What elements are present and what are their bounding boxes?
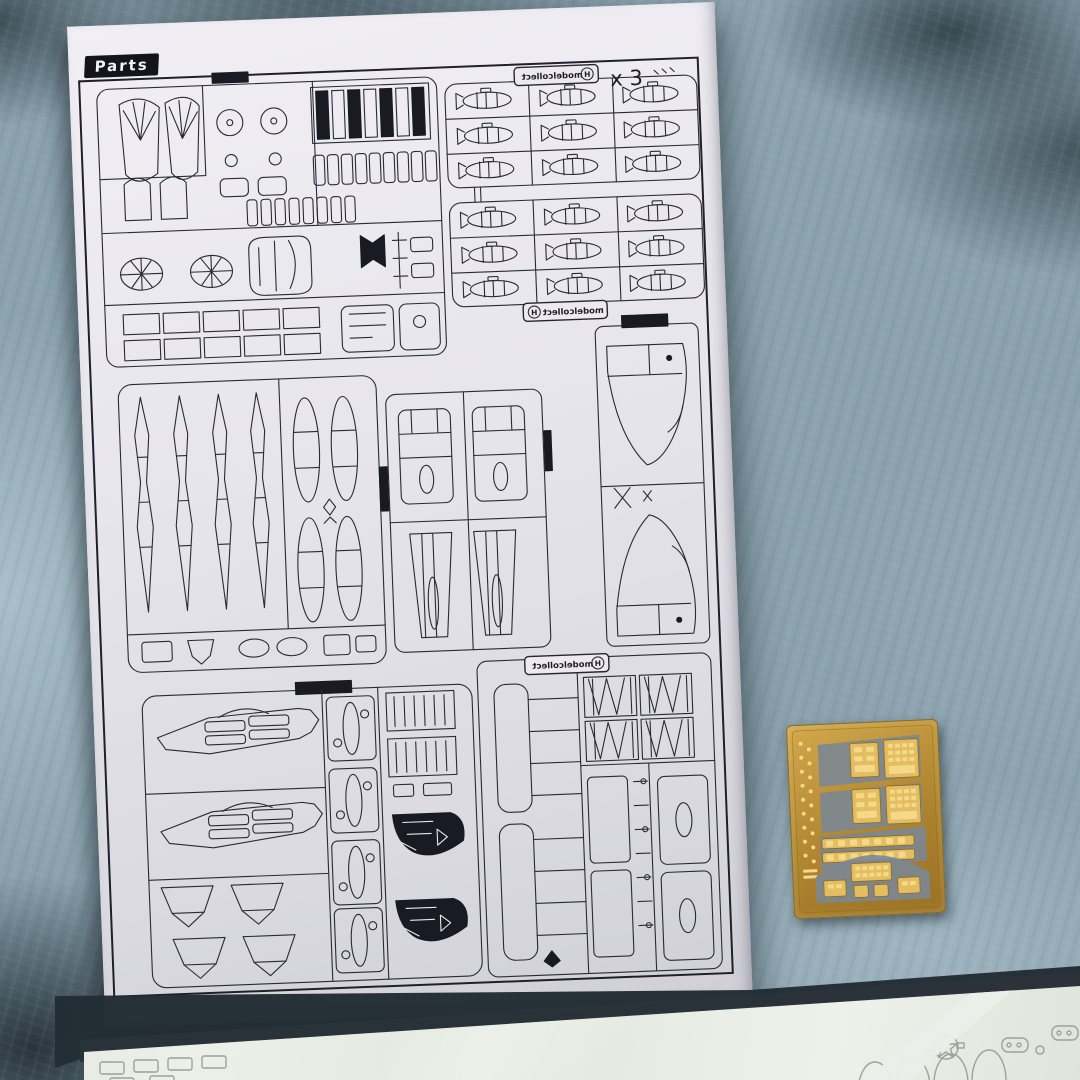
svg-text:H: H xyxy=(531,308,538,317)
page-frame-border: modelcollect H x 3 H modelcollect xyxy=(78,57,734,998)
sprue-diagrams: modelcollect H x 3 H modelcollect xyxy=(82,61,733,996)
sprue-bombs-1 xyxy=(444,75,700,189)
sprue-panels-radiators: modelcollect H xyxy=(477,650,723,978)
svg-text:H: H xyxy=(584,70,591,79)
decal-outline-shapes xyxy=(100,1026,1078,1080)
star-insignia-outline xyxy=(928,1035,964,1059)
page-label: Parts xyxy=(84,53,159,78)
sprue-fuselage-halves xyxy=(595,313,711,647)
svg-text:H: H xyxy=(595,659,602,668)
sprue-booms-tanks xyxy=(118,375,395,673)
sprue-bombs-2 xyxy=(448,179,704,308)
sprue-nacelles-wings xyxy=(385,389,559,653)
svg-text:x 3: x 3 xyxy=(610,66,643,91)
quantity-note: x 3 xyxy=(610,65,675,91)
brand-label-bottom: H modelcollect xyxy=(523,300,608,321)
bag-fold-highlight xyxy=(864,966,1034,1080)
photo-scene: Parts xyxy=(0,0,1080,1080)
sprue-small-parts xyxy=(96,65,447,368)
photo-etch-details xyxy=(787,720,945,918)
etch-rivet-columns xyxy=(798,741,818,878)
sprue-wings-props xyxy=(141,676,482,988)
etch-instrument-panels xyxy=(817,735,923,833)
instruction-booklet-page: Parts xyxy=(67,2,753,1028)
photo-etch-fret xyxy=(786,719,946,919)
brand-label-top: modelcollect H xyxy=(514,64,599,85)
